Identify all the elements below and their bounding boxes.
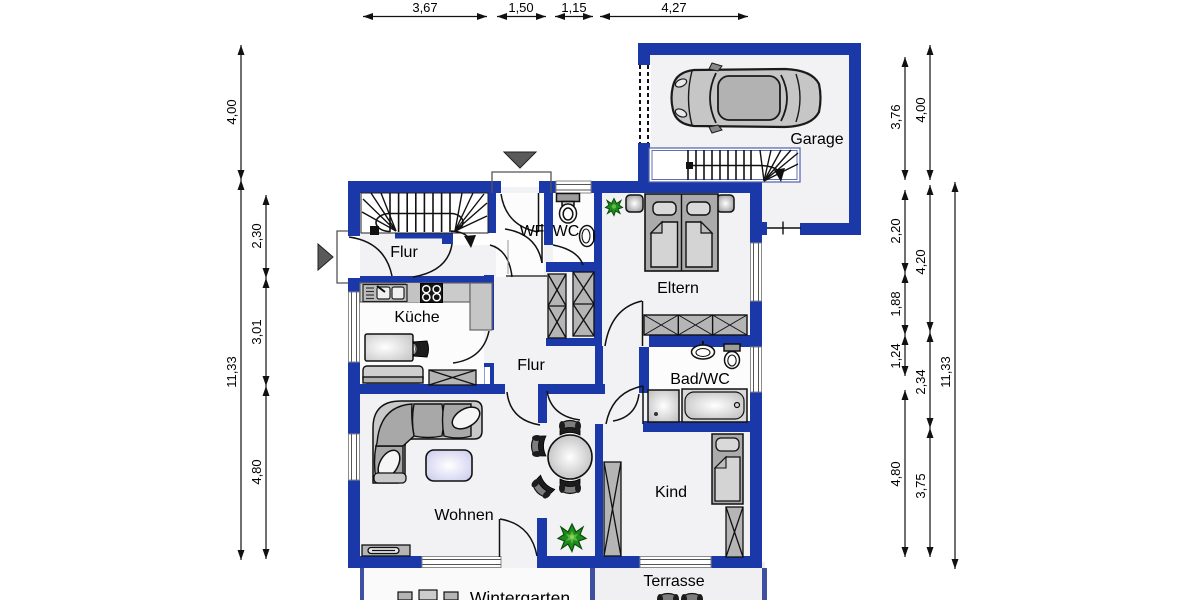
svg-text:WF: WF: [520, 223, 545, 240]
svg-text:3,75: 3,75: [913, 473, 928, 498]
svg-text:4,80: 4,80: [888, 461, 903, 486]
svg-text:11,33: 11,33: [938, 356, 953, 388]
svg-text:Flur: Flur: [517, 357, 545, 374]
svg-text:Wohnen: Wohnen: [434, 507, 493, 524]
svg-text:Küche: Küche: [394, 309, 439, 326]
svg-text:Terrasse: Terrasse: [643, 573, 704, 590]
svg-text:3,01: 3,01: [249, 319, 264, 344]
svg-text:3,67: 3,67: [412, 0, 437, 15]
svg-text:4,80: 4,80: [249, 459, 264, 484]
svg-text:3,76: 3,76: [888, 104, 903, 129]
svg-text:Wintergarten: Wintergarten: [470, 588, 570, 600]
svg-text:4,27: 4,27: [661, 0, 686, 15]
svg-text:4,00: 4,00: [224, 99, 239, 124]
svg-text:1,50: 1,50: [508, 0, 533, 15]
svg-text:1,15: 1,15: [561, 0, 586, 15]
svg-text:Kind: Kind: [655, 484, 687, 501]
svg-text:1,24: 1,24: [888, 343, 903, 368]
svg-text:2,30: 2,30: [249, 223, 264, 248]
svg-text:2,34: 2,34: [913, 369, 928, 394]
svg-text:4,20: 4,20: [913, 249, 928, 274]
svg-text:Garage: Garage: [790, 131, 843, 148]
svg-text:4,00: 4,00: [913, 97, 928, 122]
svg-text:WC: WC: [553, 223, 580, 240]
svg-text:11,33: 11,33: [224, 356, 239, 388]
svg-text:Flur: Flur: [390, 244, 418, 261]
svg-text:Bad/WC: Bad/WC: [670, 371, 730, 388]
svg-text:Eltern: Eltern: [657, 280, 699, 297]
svg-text:1,88: 1,88: [888, 291, 903, 316]
svg-text:2,20: 2,20: [888, 218, 903, 243]
